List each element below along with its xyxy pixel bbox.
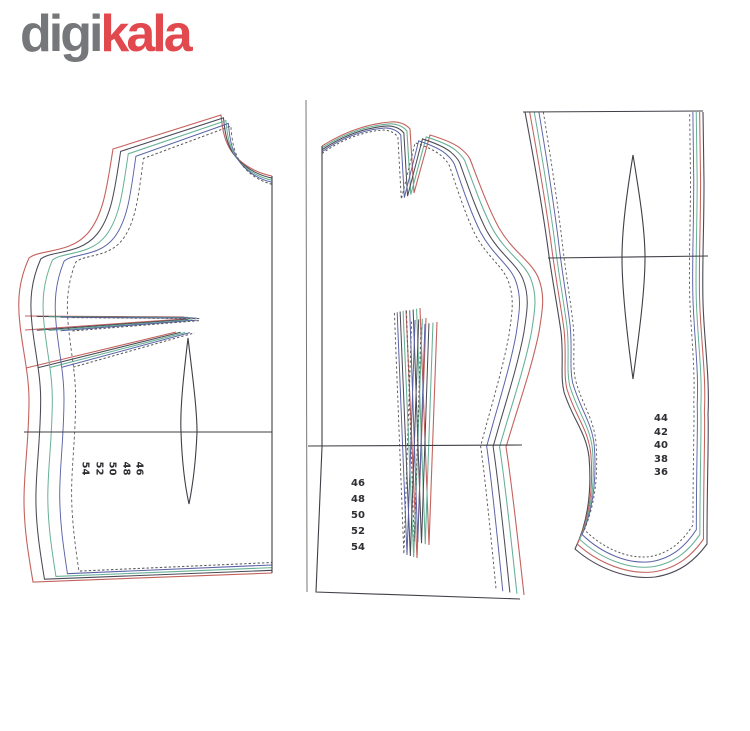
size-label: 50 xyxy=(351,508,365,524)
left-piece-size-labels: 54 52 50 48 46 xyxy=(78,463,158,487)
middle-piece xyxy=(308,122,543,599)
right-piece-diamond-dart xyxy=(622,155,645,379)
sewing-pattern-diagram xyxy=(0,0,750,731)
left-piece-size-outline xyxy=(19,115,272,582)
left-piece-size-outline xyxy=(43,121,272,577)
right-piece-size-outline xyxy=(539,112,698,562)
right-piece-size-labels: 44 42 40 38 36 xyxy=(654,412,668,480)
right-piece-size-outline xyxy=(530,112,705,572)
middle-piece-waistline xyxy=(308,445,522,446)
right-piece-size-outline xyxy=(534,112,701,567)
size-label: 48 xyxy=(120,462,130,475)
middle-piece-size-labels: 46 48 50 52 54 xyxy=(351,476,365,556)
right-piece-top-edge xyxy=(523,111,703,112)
size-label: 54 xyxy=(80,462,90,475)
size-label: 52 xyxy=(351,524,365,540)
left-piece xyxy=(19,115,272,582)
size-label: 54 xyxy=(351,540,365,556)
right-piece-size-outline xyxy=(525,112,708,577)
right-piece-size-outline-dashed xyxy=(543,112,694,557)
size-label: 48 xyxy=(351,492,365,508)
divider-line xyxy=(306,100,307,592)
size-label: 38 xyxy=(654,453,668,467)
product-image: digikala xyxy=(0,0,750,731)
size-label: 36 xyxy=(654,466,668,480)
size-label: 44 xyxy=(654,412,668,426)
right-piece-hip-line xyxy=(548,256,708,258)
size-label: 40 xyxy=(654,439,668,453)
right-piece xyxy=(523,111,708,577)
left-piece-size-outline-dashed xyxy=(67,126,272,571)
size-label: 46 xyxy=(351,476,365,492)
left-piece-fisheye-dart xyxy=(181,338,197,504)
left-piece-size-outline xyxy=(55,123,272,573)
size-label: 50 xyxy=(107,462,117,475)
size-label: 42 xyxy=(654,426,668,440)
size-label: 46 xyxy=(134,462,144,475)
size-label: 52 xyxy=(93,462,103,475)
left-piece-size-outline xyxy=(31,118,272,579)
